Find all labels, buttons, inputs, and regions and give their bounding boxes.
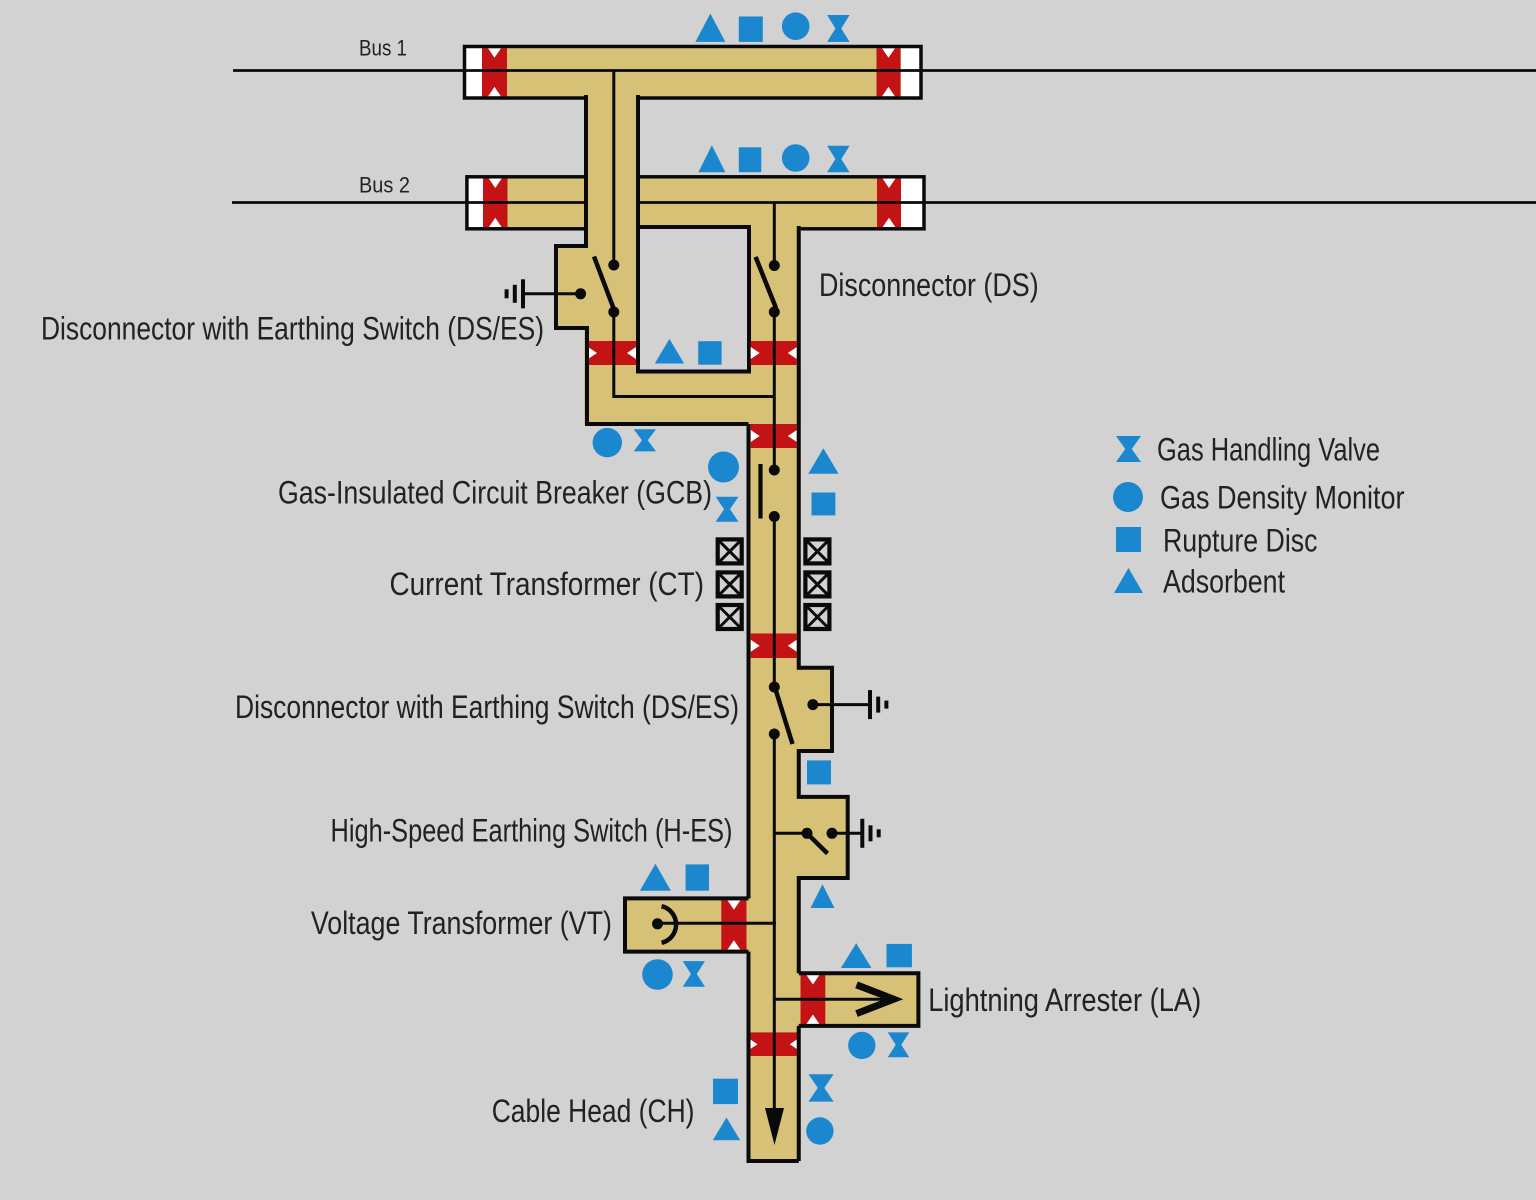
- svg-text:Bus 2: Bus 2: [359, 173, 410, 198]
- svg-text:Voltage Transformer (VT): Voltage Transformer (VT): [311, 905, 612, 941]
- svg-text:Adsorbent: Adsorbent: [1163, 564, 1285, 600]
- svg-text:Gas Handling Valve: Gas Handling Valve: [1157, 432, 1380, 468]
- svg-text:Gas-Insulated Circuit Breaker: Gas-Insulated Circuit Breaker (GCB): [278, 475, 712, 511]
- svg-text:Gas Density Monitor: Gas Density Monitor: [1160, 480, 1405, 516]
- svg-text:Bus 1: Bus 1: [359, 36, 407, 61]
- svg-text:Lightning Arrester (LA): Lightning Arrester (LA): [928, 982, 1201, 1018]
- svg-text:Current Transformer (CT): Current Transformer (CT): [390, 566, 705, 602]
- svg-text:Disconnector with Earthing Swi: Disconnector with Earthing Switch (DS/ES…: [235, 689, 739, 725]
- svg-text:Disconnector (DS): Disconnector (DS): [819, 267, 1039, 303]
- svg-text:High-Speed Earthing Switch (H-: High-Speed Earthing Switch (H-ES): [331, 813, 733, 849]
- svg-text:Cable Head (CH): Cable Head (CH): [492, 1093, 695, 1129]
- svg-text:Rupture Disc: Rupture Disc: [1163, 523, 1318, 559]
- svg-text:Disconnector with Earthing Swi: Disconnector with Earthing Switch (DS/ES…: [41, 311, 544, 347]
